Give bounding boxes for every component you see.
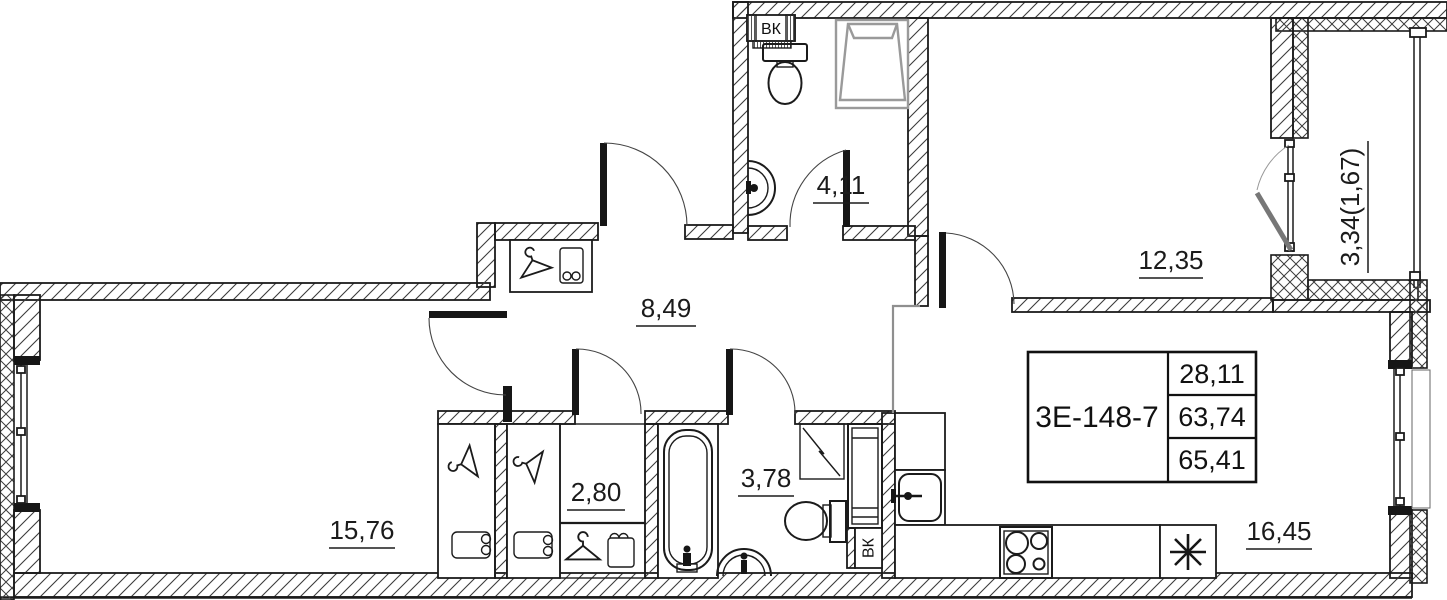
floor-plan-page: ВК [0, 0, 1447, 600]
door-living-leaf [429, 311, 507, 318]
wall-bath2-top-right [795, 411, 895, 424]
label-bathroom: 3,78 [738, 463, 794, 496]
svg-text:16,45: 16,45 [1246, 516, 1311, 546]
wall-right-insulation-bottom [1410, 510, 1427, 583]
wall-bedroom-left [915, 236, 928, 306]
duct-label: ВК [761, 21, 782, 38]
zone-boundary [893, 306, 920, 413]
wall-kitchen-north [1273, 300, 1430, 312]
wall-left-bottom [14, 510, 40, 573]
wall-balcony-bottom [1308, 280, 1418, 300]
wall-left-insulation [0, 295, 14, 600]
wall-left-top [14, 295, 40, 360]
svg-text:8,49: 8,49 [641, 293, 692, 323]
label-balcony: 3,34(1,67) [1335, 141, 1368, 273]
toilet-cistern [830, 501, 846, 542]
door-bedroom-leaf [939, 232, 946, 308]
door-living-swing [429, 318, 506, 395]
svg-text:15,76: 15,76 [329, 515, 394, 545]
label-living-room: 15,76 [329, 515, 395, 548]
door-wardrobe-swing [576, 349, 641, 414]
label-bedroom: 12,35 [1138, 245, 1203, 278]
wall-bedroom-south [1012, 298, 1273, 312]
wardrobe-divider [495, 424, 507, 578]
wall-bath1-right [908, 18, 928, 236]
label-hallway: 8,49 [636, 293, 696, 326]
balcony-door-swing [1257, 145, 1289, 190]
toilet-bowl [785, 502, 827, 540]
svg-text:3,78: 3,78 [741, 463, 792, 493]
asterisk-icon [1170, 534, 1206, 570]
kitchen-cabinet [895, 413, 945, 470]
hanger-icon [566, 532, 600, 559]
kitchen-sink-unit [895, 470, 945, 525]
unit-table: 3Е-148-7 28,11 63,74 65,41 [1028, 352, 1256, 482]
floor-plan: ВК [0, 0, 1447, 600]
shower-cabin [836, 20, 908, 108]
unit-total-area: 65,41 [1178, 445, 1246, 475]
wall-top [733, 2, 1447, 18]
door-bedroom-swing [946, 233, 1014, 304]
door-wardrobe-leaf [572, 349, 579, 415]
svg-text:12,35: 12,35 [1138, 245, 1203, 275]
wall-bath1-bottom-right [843, 226, 915, 240]
wall-balcony-left-insulation [1293, 18, 1308, 138]
wall-nook-top [495, 223, 598, 240]
wall-bath1-left [733, 2, 748, 233]
wall-hall-stub [685, 225, 733, 239]
wall-bath2-left [645, 424, 658, 578]
door-jamb-post [503, 386, 512, 422]
kitchen-counter [895, 525, 1160, 578]
duct-label: ВК [861, 537, 878, 558]
unit-living-area: 28,11 [1179, 359, 1245, 389]
label-bathroom-wc: 4,11 [813, 170, 869, 203]
balcony-door-leaf [1257, 193, 1291, 250]
svg-text:2,80: 2,80 [571, 477, 622, 507]
wall-bath1-bottom-left [748, 226, 787, 240]
door-bath2-leaf [726, 349, 733, 415]
wall-nook-left [477, 223, 495, 287]
unit-code: 3Е-148-7 [1035, 401, 1158, 434]
wall-right-bottom [1390, 510, 1412, 578]
wall-corridor [0, 283, 490, 300]
window-left-cap-top [14, 356, 40, 365]
window-right-cap-bottom [1388, 506, 1412, 515]
wall-bath2-top-left [645, 411, 728, 424]
label-wardrobe-room: 2,80 [567, 477, 625, 510]
wall-right-top [1390, 312, 1412, 366]
bathroom-fixtures: ВК [658, 424, 882, 578]
door-bath2-swing [730, 349, 795, 414]
window-left-cap-bottom [14, 503, 40, 512]
wall-balcony-left-bottom [1271, 255, 1308, 300]
entry-closet [510, 240, 592, 292]
walls [0, 2, 1447, 600]
wall-balcony-left [1271, 18, 1293, 138]
window-right-sill [1412, 370, 1430, 508]
svg-text:3,34(1,67): 3,34(1,67) [1335, 148, 1365, 267]
door-entry-swing [604, 143, 687, 226]
toilet-bowl [769, 62, 802, 104]
duct-cabinet [848, 424, 882, 528]
unit-area: 63,74 [1178, 402, 1246, 432]
door-entry-leaf [600, 143, 607, 226]
label-kitchen: 16,45 [1246, 516, 1312, 549]
svg-text:4,11: 4,11 [817, 170, 866, 200]
